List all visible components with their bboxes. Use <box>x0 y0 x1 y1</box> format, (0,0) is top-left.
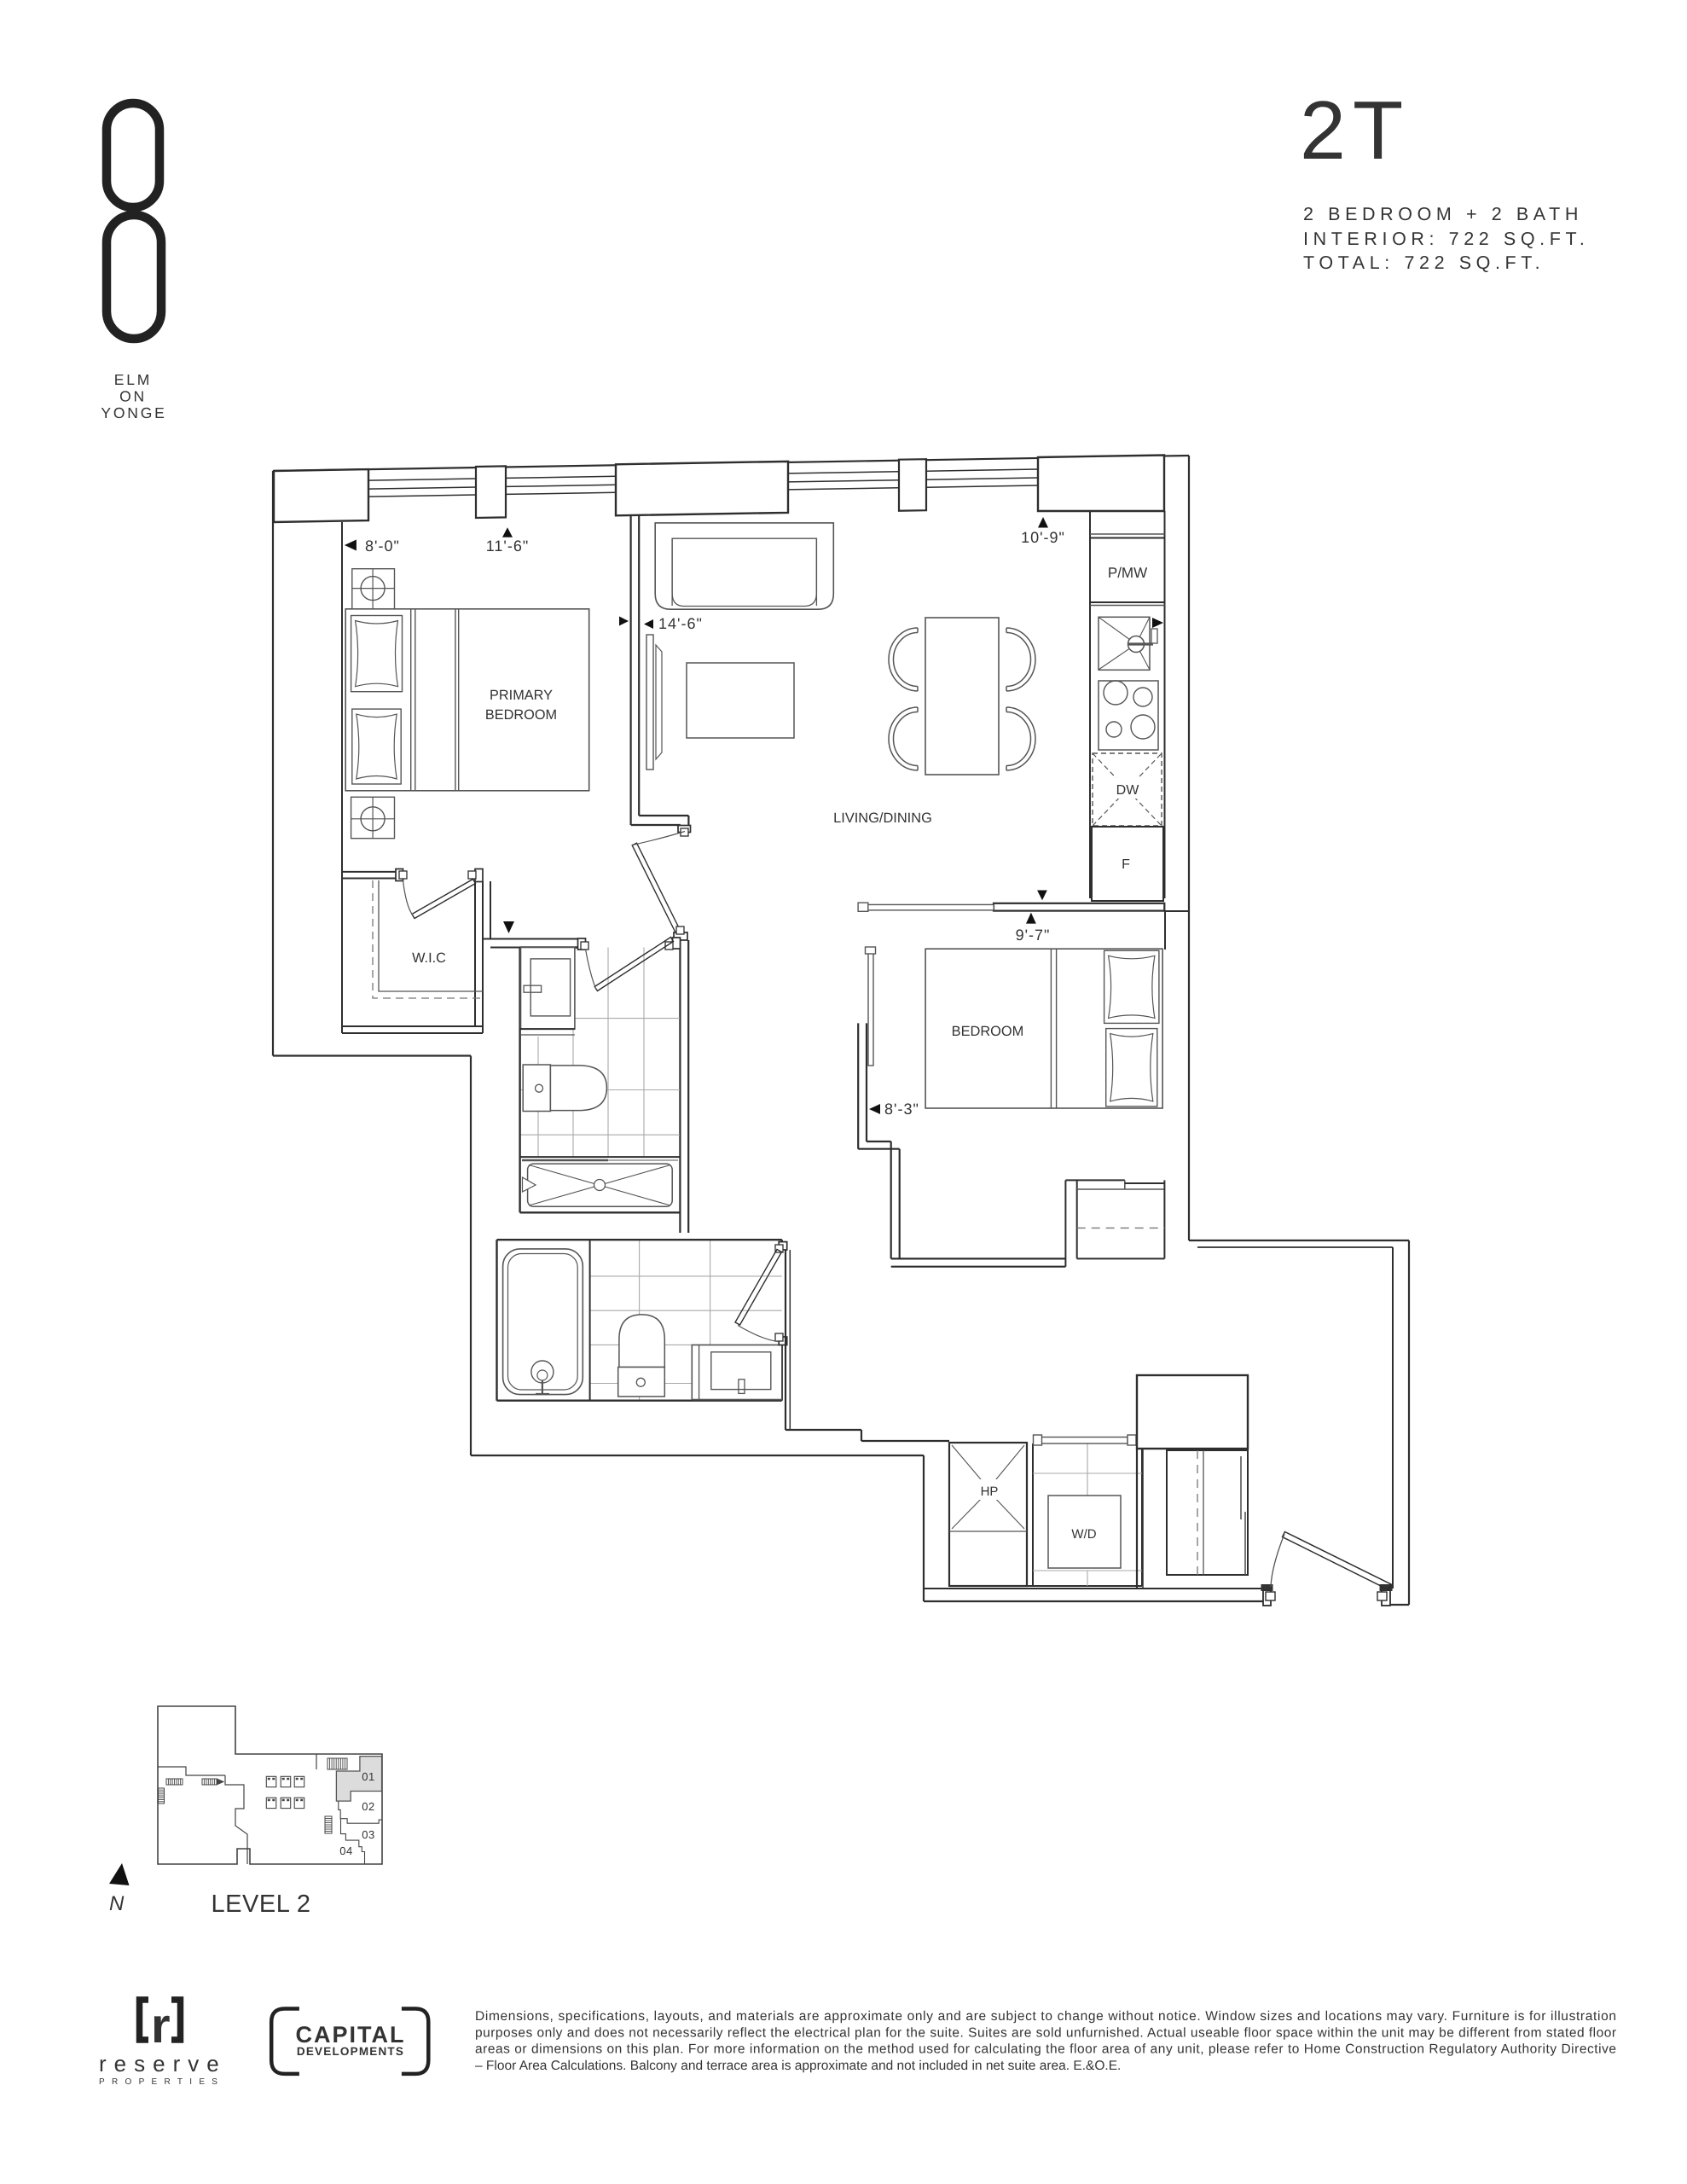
svg-text:INTERIOR: 722 SQ.FT.: INTERIOR: 722 SQ.FT. <box>1303 229 1589 249</box>
svg-text:BEDROOM: BEDROOM <box>485 707 557 723</box>
svg-text:14'-6": 14'-6" <box>658 615 703 632</box>
svg-text:PROPERTIES: PROPERTIES <box>99 2077 224 2087</box>
svg-text:YONGE: YONGE <box>101 404 166 421</box>
svg-text:W/D: W/D <box>1071 1527 1096 1542</box>
svg-text:8'-0": 8'-0" <box>365 537 400 555</box>
svg-text:CAPITAL: CAPITAL <box>296 2022 406 2047</box>
svg-text:purposes only and does not nec: purposes only and does not necessarily r… <box>475 2025 1616 2040</box>
svg-text:PRIMARY: PRIMARY <box>490 688 553 703</box>
svg-text:03: 03 <box>362 1828 374 1841</box>
svg-text:– Floor Area Calculations. Bal: – Floor Area Calculations. Balcony and t… <box>475 2059 1121 2073</box>
svg-text:10'-9": 10'-9" <box>1021 529 1065 546</box>
svg-text:r: r <box>151 1998 171 2053</box>
svg-text:N: N <box>109 1892 125 1915</box>
svg-text:DEVELOPMENTS: DEVELOPMENTS <box>297 2045 404 2058</box>
svg-text:TOTAL: 722 SQ.FT.: TOTAL: 722 SQ.FT. <box>1303 253 1545 273</box>
svg-text:ELM: ELM <box>114 371 152 388</box>
svg-text:reserve: reserve <box>99 2051 227 2077</box>
svg-text:9'-7": 9'-7" <box>1016 926 1051 944</box>
svg-text:2T: 2T <box>1300 84 1410 177</box>
svg-text:LEVEL 2: LEVEL 2 <box>212 1891 311 1918</box>
svg-text:8'-3": 8'-3" <box>884 1101 919 1118</box>
svg-text:2 BEDROOM + 2 BATH: 2 BEDROOM + 2 BATH <box>1303 204 1583 224</box>
svg-text:04: 04 <box>339 1844 352 1857</box>
svg-text:LIVING/DINING: LIVING/DINING <box>833 810 932 826</box>
svg-text:F: F <box>1122 857 1130 872</box>
svg-text:HP: HP <box>981 1484 999 1499</box>
svg-text:02: 02 <box>362 1800 374 1813</box>
svg-text:01: 01 <box>362 1770 374 1783</box>
svg-text:DW: DW <box>1116 783 1140 798</box>
svg-text:Dimensions, specifications, la: Dimensions, specifications, layouts, and… <box>475 2009 1616 2024</box>
svg-text:BEDROOM: BEDROOM <box>952 1024 1024 1039</box>
svg-text:ON: ON <box>119 388 147 405</box>
svg-text:11'-6": 11'-6" <box>486 537 530 555</box>
svg-text:P/MW: P/MW <box>1108 565 1147 581</box>
svg-text:W.I.C: W.I.C <box>412 950 446 966</box>
svg-text:areas or dimensions on this pl: areas or dimensions on this plan. For mo… <box>475 2042 1616 2057</box>
